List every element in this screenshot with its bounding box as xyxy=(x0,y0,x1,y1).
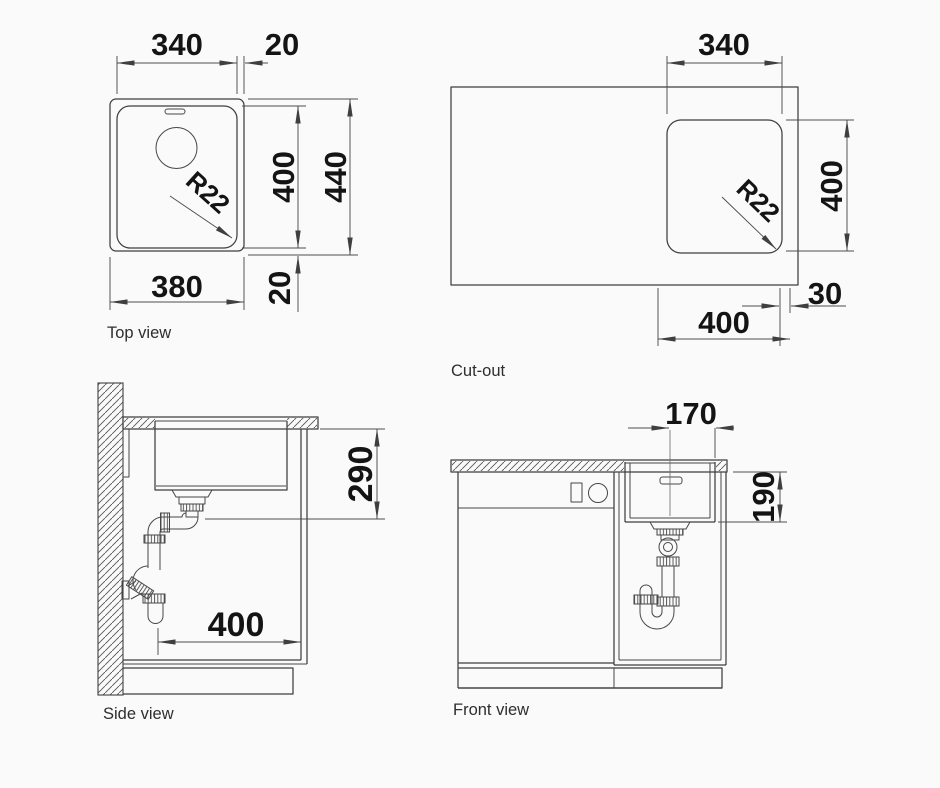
dim-bowl-width: 340 xyxy=(117,27,237,94)
dim-value-cutout-depth: 400 xyxy=(814,160,849,212)
side-view-label: Side view xyxy=(103,705,174,723)
front-view: 170 190 Front view xyxy=(451,396,787,719)
u-bend xyxy=(640,612,674,629)
dim-value-cabinet-width: 400 xyxy=(698,305,750,340)
plinth xyxy=(123,668,293,694)
dim-drain-offset: 170 xyxy=(628,396,734,458)
wall-batten xyxy=(123,429,129,477)
overflow-slot xyxy=(660,477,682,484)
cutout-view: R22 340 400 30 400 Cut-out xyxy=(451,27,854,380)
drain-strainer xyxy=(172,490,212,517)
dim-value-radius: R22 xyxy=(180,165,236,219)
dim-cutout-radius: R22 xyxy=(722,173,786,249)
pipe-nut xyxy=(144,535,165,543)
dim-value-cabinet-depth: 400 xyxy=(208,606,265,644)
dim-cutout-depth: 400 xyxy=(786,120,854,251)
dim-bowl-depth: 400 xyxy=(242,106,306,248)
dim-value-drain-offset: 170 xyxy=(665,396,717,431)
dim-corner-radius: R22 xyxy=(170,165,236,238)
pipe-nut xyxy=(143,594,165,603)
dim-value-offset-30: 30 xyxy=(808,276,842,311)
dim-value-radius: R22 xyxy=(731,173,786,228)
dim-value-bowl-depth: 190 xyxy=(746,471,781,523)
dim-overall-width: 380 xyxy=(110,257,244,310)
wall-section xyxy=(98,383,123,695)
dim-cabinet-width: 400 xyxy=(658,288,790,346)
dim-offset-30: 30 xyxy=(742,276,846,346)
trap-cup xyxy=(148,616,163,624)
control-panel-rect xyxy=(571,483,582,502)
cleanout-cap xyxy=(640,585,652,591)
dim-value-rim-right: 20 xyxy=(265,27,299,62)
dim-value-outlet-height: 290 xyxy=(342,446,380,503)
dim-outlet-height: 290 xyxy=(205,429,385,519)
drain-strainer xyxy=(650,522,690,540)
dim-cabinet-depth: 400 xyxy=(158,606,301,655)
overflow-slot xyxy=(165,109,185,114)
top-view-label: Top view xyxy=(107,324,171,342)
trap-piping xyxy=(634,538,679,629)
dim-value-bowl-width: 340 xyxy=(151,27,203,62)
dim-overall-depth: 440 xyxy=(248,99,358,255)
dim-rim-offset-right: 20 xyxy=(244,27,299,94)
pipe-nut xyxy=(657,597,679,606)
dim-rim-offset-front: 20 xyxy=(262,256,298,312)
dim-value-bowl-depth: 400 xyxy=(266,151,301,203)
cutout-view-label: Cut-out xyxy=(451,362,506,380)
drain-hole xyxy=(156,128,197,169)
front-view-label: Front view xyxy=(453,701,529,719)
elbow-joint xyxy=(659,538,677,556)
dim-value-overall-width: 380 xyxy=(151,269,203,304)
bowl-section xyxy=(155,421,287,490)
dim-value-cutout-width: 340 xyxy=(698,27,750,62)
left-cabinet xyxy=(458,472,614,688)
dim-value-overall-depth: 440 xyxy=(318,151,353,203)
dim-value-rim-front: 20 xyxy=(262,271,297,305)
dim-bowl-depth: 190 xyxy=(718,471,787,523)
sink-rim-outline xyxy=(110,99,244,251)
trap-piping xyxy=(122,511,198,624)
pipe-nut xyxy=(634,595,658,604)
plinth xyxy=(458,668,722,688)
control-knob xyxy=(589,484,608,503)
side-view: 290 400 Side view xyxy=(98,383,385,723)
top-view: R22 340 20 400 440 20 xyxy=(107,27,358,342)
drawing-canvas: R22 340 20 400 440 20 xyxy=(0,0,940,788)
sink-technical-drawing: R22 340 20 400 440 20 xyxy=(0,0,940,788)
pipe-nut xyxy=(657,557,679,566)
dim-cutout-width: 340 xyxy=(667,27,782,114)
